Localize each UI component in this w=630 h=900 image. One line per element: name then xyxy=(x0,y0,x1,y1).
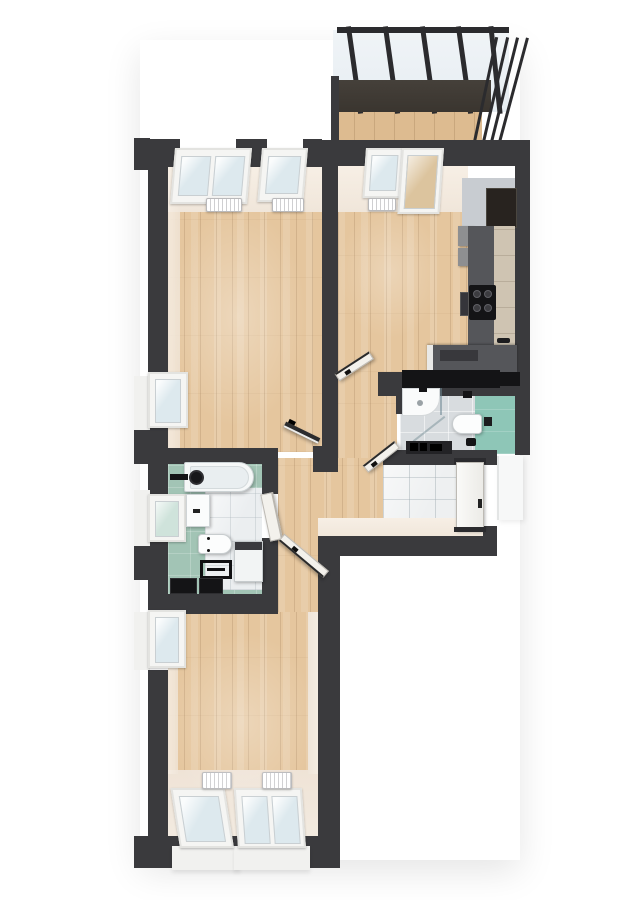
bathroom-east-wall-a xyxy=(262,452,278,494)
bedroom-east-wall xyxy=(318,548,340,868)
vanity-sink xyxy=(186,494,210,527)
window-pane-icon xyxy=(155,501,179,537)
rack-rung-icon xyxy=(207,568,225,571)
bottle-icon xyxy=(420,443,427,451)
balcony-fascia-beam xyxy=(333,80,491,112)
floor-plan-canvas xyxy=(0,0,630,900)
west-pillar xyxy=(134,544,150,580)
hall-corner-block xyxy=(313,446,338,472)
window-pane-icon xyxy=(179,796,226,842)
bedroom-side-window xyxy=(148,610,186,668)
black-stool-icon xyxy=(189,470,204,485)
entrance-door-frame-bottom xyxy=(454,527,486,532)
toilet-hinge-icon xyxy=(207,537,210,540)
tub-faucet-icon xyxy=(170,474,188,480)
bathroom-toilet xyxy=(198,534,232,554)
bottle-icon xyxy=(410,443,418,451)
door-handle-icon xyxy=(291,546,298,553)
island-end-panel xyxy=(427,345,433,372)
door-handle-icon xyxy=(478,499,482,508)
shower-head-icon xyxy=(419,388,427,392)
washing-machine xyxy=(234,541,263,582)
bathroom-east-wall-b xyxy=(262,538,278,600)
burner-icon xyxy=(473,304,481,312)
window-pane-icon xyxy=(271,796,300,844)
east-wall xyxy=(515,140,530,455)
kitchen-bar-panel-end xyxy=(498,372,520,386)
living-room-floor xyxy=(168,206,322,452)
burner-icon xyxy=(484,304,492,312)
window-pane-icon xyxy=(155,379,181,423)
window-pane-icon xyxy=(265,156,301,194)
burner-icon xyxy=(473,290,481,298)
bedroom-double-window xyxy=(234,788,306,848)
living-single-window xyxy=(257,148,308,202)
bottle-icon xyxy=(430,444,442,451)
wc-toilet xyxy=(452,414,482,434)
shower-glass-icon xyxy=(440,388,442,415)
radiator xyxy=(206,198,242,212)
living-side-window xyxy=(148,372,188,428)
kitchen-window xyxy=(363,148,404,198)
toilet-brush-icon xyxy=(466,438,476,446)
cooktop xyxy=(469,285,496,320)
window-pane-icon xyxy=(178,156,211,196)
radiator xyxy=(202,772,232,789)
burner-icon xyxy=(484,290,492,298)
towel-rack-icon xyxy=(200,560,232,579)
oven xyxy=(460,292,469,316)
island-tray xyxy=(440,350,478,361)
bedroom-window-sill xyxy=(234,846,310,870)
balcony-west-wall xyxy=(331,76,339,146)
toilet-hinge-icon xyxy=(207,549,210,552)
radiator xyxy=(262,772,292,789)
radiator xyxy=(272,198,304,212)
kitchen-tall-cabinet xyxy=(486,188,517,228)
bathroom-mat xyxy=(199,578,223,594)
balcony-door xyxy=(397,148,444,214)
window-pane-icon xyxy=(212,156,245,196)
wc-wall-faucet-icon xyxy=(463,391,472,398)
washer-panel-icon xyxy=(235,542,262,550)
shower-drain-icon xyxy=(417,400,423,406)
bedroom-single-window xyxy=(170,788,234,848)
bathroom-side-window xyxy=(148,494,186,542)
kitchen-bar-panel xyxy=(402,370,500,388)
west-wall-a xyxy=(148,140,168,372)
entrance-south-wall xyxy=(318,536,492,556)
west-pillar xyxy=(134,138,150,170)
sink-faucet-icon xyxy=(193,509,200,513)
window-pane-icon xyxy=(155,617,179,663)
bedroom-floor xyxy=(168,612,318,774)
entrance-door xyxy=(456,462,484,530)
door-glass-icon xyxy=(404,155,439,209)
kitchen-sink-faucet-icon xyxy=(497,338,510,343)
bedroom-east-wall-face xyxy=(308,612,318,774)
bathroom-mat xyxy=(170,578,197,594)
living-kitchen-wall xyxy=(322,140,338,472)
window-pane-icon xyxy=(369,155,399,191)
bedroom-window-sill xyxy=(172,846,240,870)
flush-plate-icon xyxy=(484,417,492,426)
window-pane-icon xyxy=(241,796,270,844)
entrance-landing xyxy=(497,456,523,520)
wc-shelf xyxy=(406,441,452,454)
radiator xyxy=(368,198,396,211)
living-double-window xyxy=(170,148,252,204)
